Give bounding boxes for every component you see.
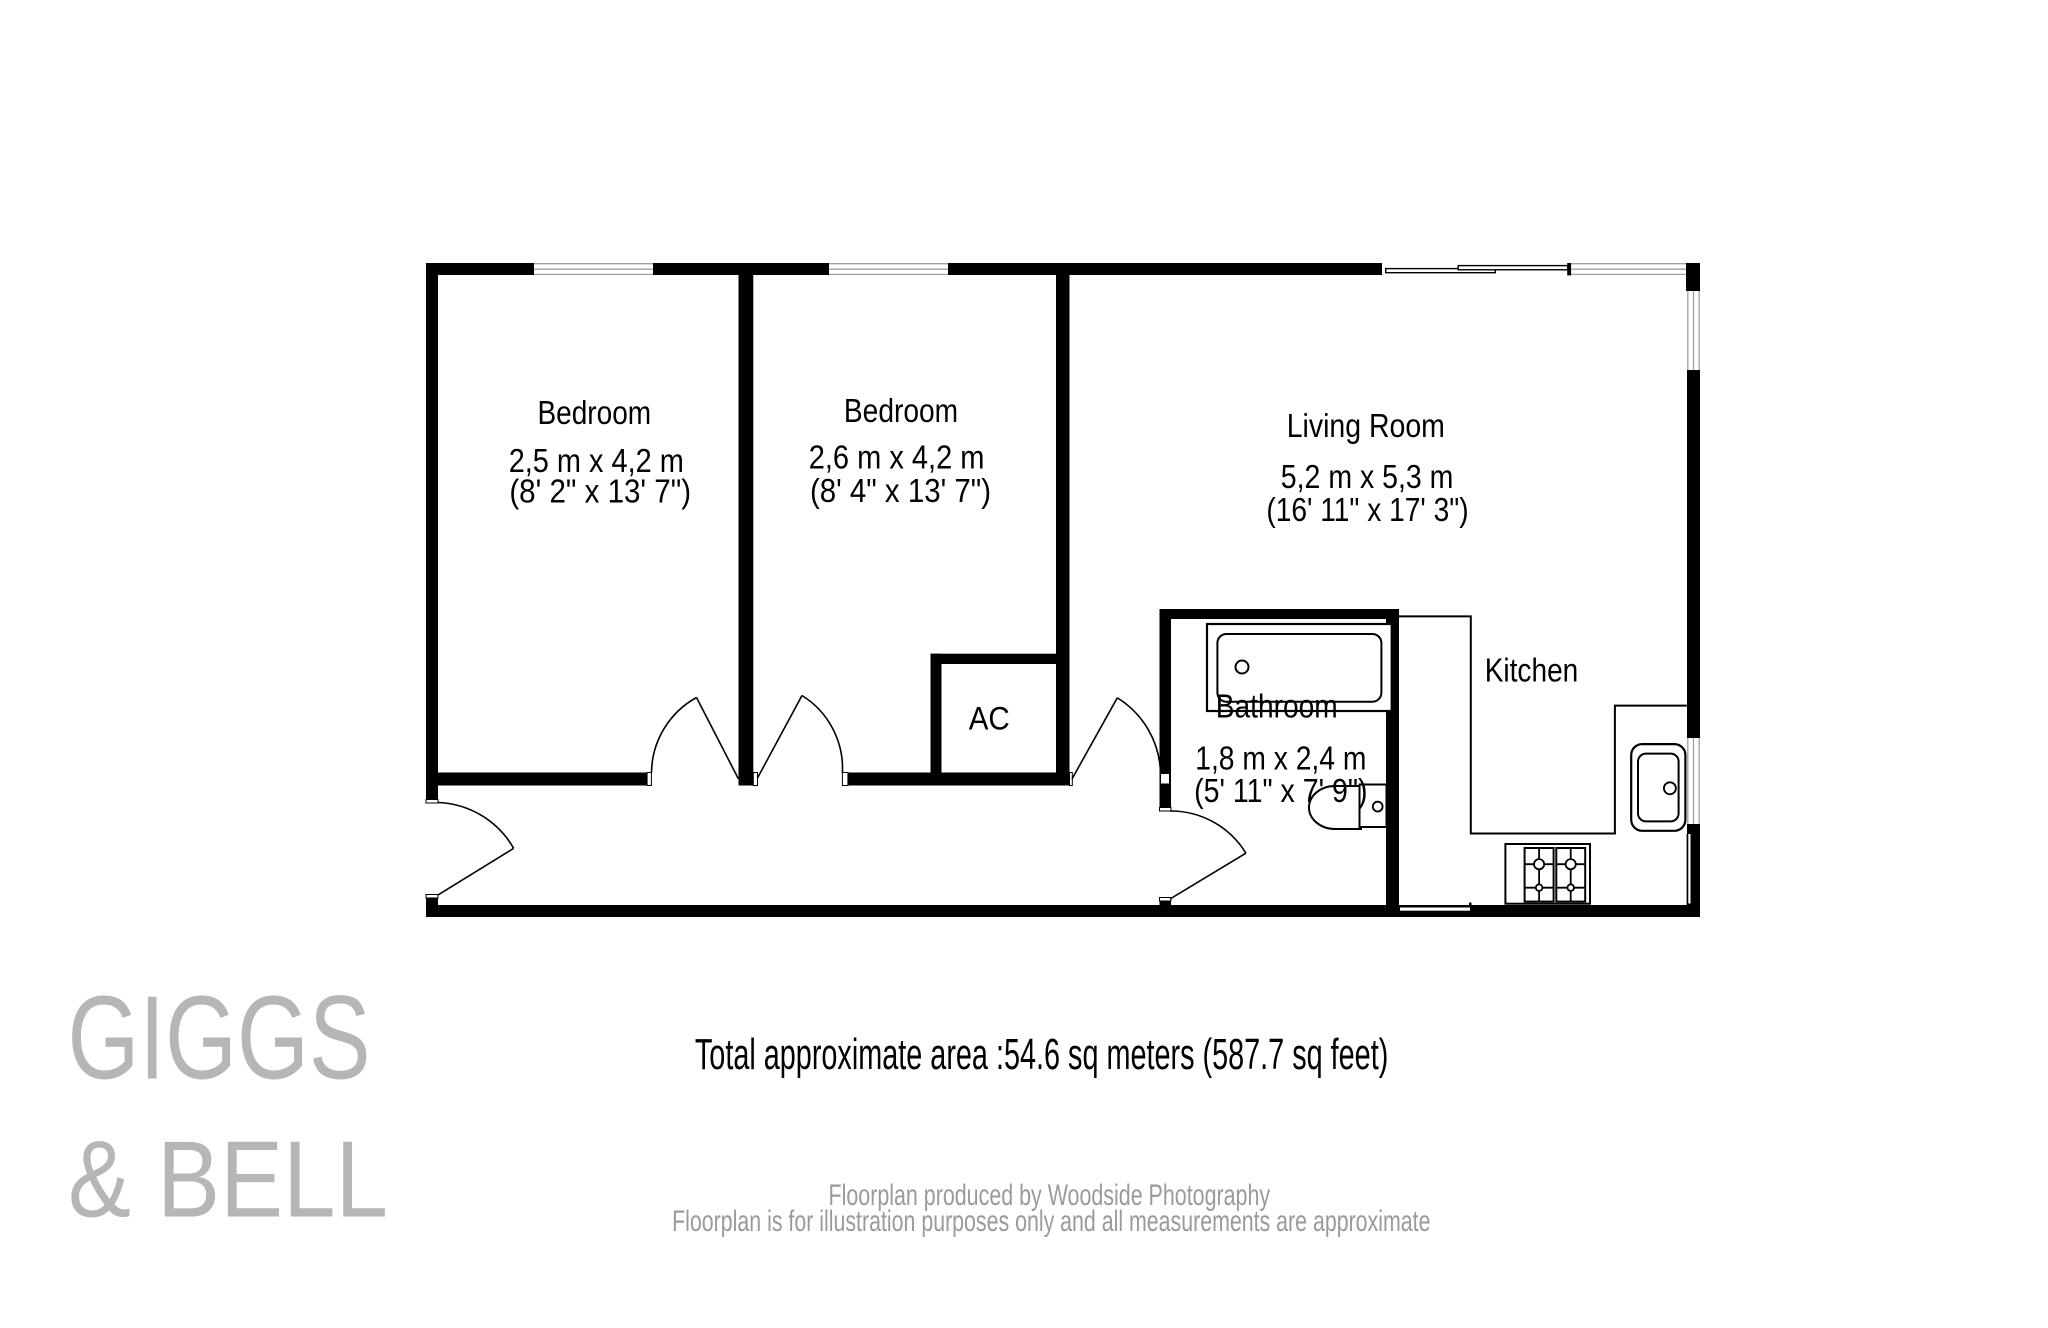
svg-text:(8' 2" x 13' 7"): (8' 2" x 13' 7") xyxy=(509,474,691,511)
svg-text:(8' 4" x 13' 7"): (8' 4" x 13' 7") xyxy=(810,473,991,510)
svg-text:Bedroom: Bedroom xyxy=(537,395,651,432)
svg-text:Total approximate area :54.6 s: Total approximate area :54.6 sq meters (… xyxy=(695,1031,1388,1079)
svg-text:Bedroom: Bedroom xyxy=(844,393,958,430)
svg-text:5,2 m x 5,3 m: 5,2 m x 5,3 m xyxy=(1281,459,1454,496)
svg-text:(16' 11" x 17' 3"): (16' 11" x 17' 3") xyxy=(1266,492,1468,529)
svg-text:Living Room: Living Room xyxy=(1287,408,1445,445)
svg-text:(5' 11" x 7' 9"): (5' 11" x 7' 9") xyxy=(1194,773,1367,810)
svg-text:Kitchen: Kitchen xyxy=(1485,653,1579,690)
svg-text:GIGGS: GIGGS xyxy=(68,972,371,1105)
svg-text:Bathroom: Bathroom xyxy=(1216,689,1338,726)
svg-text:& BELL: & BELL xyxy=(68,1118,388,1240)
svg-text:AC: AC xyxy=(969,701,1010,737)
svg-text:Floorplan is for illustration: Floorplan is for illustration purposes o… xyxy=(672,1205,1430,1238)
svg-text:2,6 m x 4,2 m: 2,6 m x 4,2 m xyxy=(809,440,985,477)
